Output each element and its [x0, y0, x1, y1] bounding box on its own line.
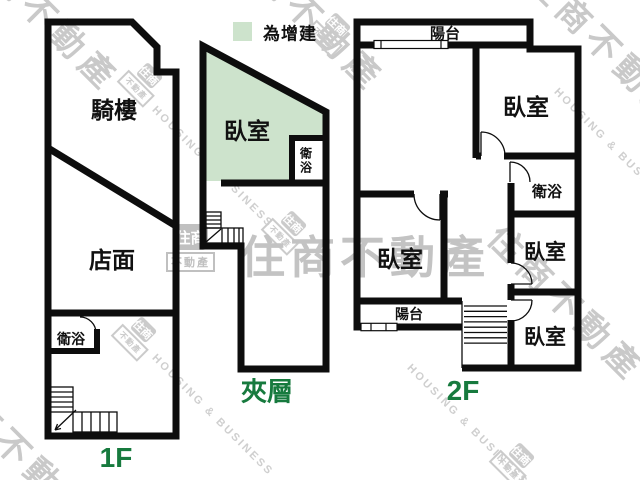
legend-addition-label: 為增建 [263, 20, 317, 45]
room-label-f2-bedroom-topright: 臥室 [503, 88, 549, 122]
stairs-1f-upper [50, 387, 73, 412]
room-label-f2-bedroom-middle: 臥室 [524, 236, 566, 266]
door-arc [510, 162, 530, 182]
room-label-mezz-bedroom: 臥室 [224, 112, 270, 146]
f1-diagonal-wall [48, 148, 176, 226]
room-label-mezz-bath: 衛浴 [298, 147, 315, 175]
stairs-mezz-lower [206, 228, 243, 243]
stair-treads [50, 392, 73, 407]
window-bottom-balcony [361, 323, 397, 330]
stairs-1f-lower [73, 412, 117, 432]
stair-treads [222, 228, 239, 243]
stair-treads [464, 306, 507, 343]
room-label-f1-store: 店面 [89, 241, 135, 275]
stairs-diagonal [206, 229, 221, 242]
f1-outline [48, 22, 176, 436]
stair-treads [82, 412, 109, 432]
room-label-f1-arcade: 騎樓 [91, 91, 137, 125]
legend-addition-swatch [233, 22, 252, 41]
stair-treads [206, 216, 221, 224]
door-arc [511, 263, 532, 284]
door-arc [481, 132, 505, 156]
windows [361, 41, 448, 331]
walls [48, 22, 578, 436]
room-label-f2-bath: 衛浴 [532, 181, 562, 202]
room-label-f2-balcony-bottom: 陽台 [395, 304, 423, 324]
door-arc [511, 300, 532, 321]
room-label-f2-bedroom-left: 臥室 [377, 240, 423, 274]
floor-label-mezzanine: 夾層 [241, 372, 293, 409]
door-arc [414, 194, 440, 220]
floor-label-1f: 1F [100, 442, 133, 474]
room-label-f2-balcony-top: 陽台 [430, 23, 460, 44]
room-label-f2-bedroom-bottom: 臥室 [524, 321, 566, 351]
floorplan-canvas: 住商不動產 住商不動產 住商不動產 住商不動產 住商不動產 HOUSING & … [0, 0, 640, 480]
floor-label-2f: 2F [447, 375, 480, 407]
room-label-f1-bath: 衛浴 [57, 329, 85, 349]
